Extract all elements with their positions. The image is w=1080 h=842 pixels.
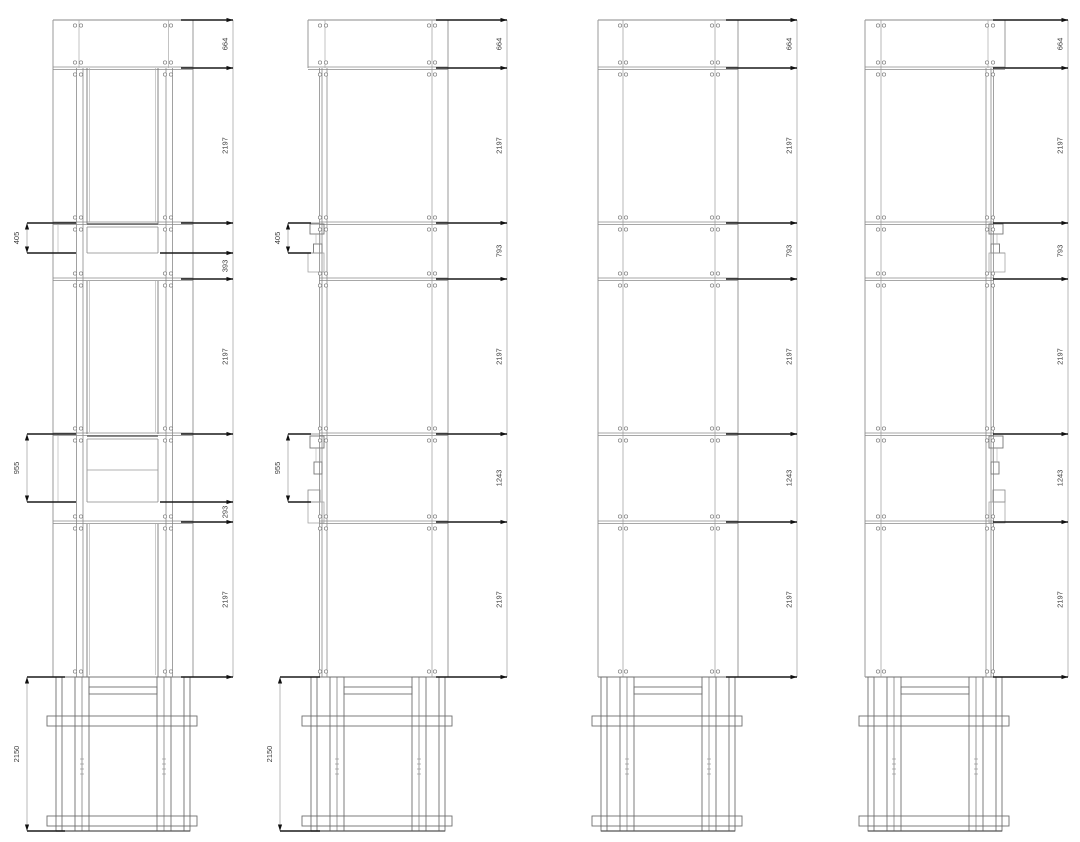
bolt-circle (79, 272, 82, 275)
bolt-circle (618, 670, 621, 673)
bolt-circle (710, 427, 713, 430)
bolt-circle (618, 527, 621, 530)
view-elevation-4: 6642197793219712432197 (859, 18, 1068, 831)
bolt-circle (991, 228, 994, 231)
dim-arrow (791, 432, 798, 436)
bolt-circle (716, 24, 719, 27)
bolt-circle (624, 272, 627, 275)
bolt-circle (324, 73, 327, 76)
bolt-circle (985, 527, 988, 530)
bolt-circle (79, 24, 82, 27)
bolt-circle (169, 73, 172, 76)
bolt-circle (624, 439, 627, 442)
bolt-circle (324, 527, 327, 530)
bolt-circle (716, 427, 719, 430)
bolt-circle (876, 24, 879, 27)
bolt-circle (882, 439, 885, 442)
dimension-chain: 6642197793219712432197 (993, 18, 1068, 679)
bolt-circle (716, 515, 719, 518)
bolt-circle (876, 61, 879, 64)
bolt-circle (618, 439, 621, 442)
dim-arrow (501, 18, 508, 22)
bolt-circle (433, 427, 436, 430)
bolt-circle (169, 24, 172, 27)
bolt-circle (427, 61, 430, 64)
bolt-circle (79, 427, 82, 430)
drawing-rect (439, 677, 445, 831)
bolt-circle (324, 272, 327, 275)
dim-arrow (227, 18, 234, 22)
bolt-circle (169, 61, 172, 64)
bolt-circle (433, 670, 436, 673)
bolt-circle (324, 515, 327, 518)
bolt-circle (433, 228, 436, 231)
dim-arrow (286, 496, 290, 503)
bolt-circle (73, 439, 76, 442)
dim-arrow (1062, 277, 1069, 281)
drawing-rect (996, 677, 1002, 831)
drawing-rect (989, 253, 1005, 272)
bolt-circle (710, 439, 713, 442)
drawing-rect (989, 502, 1005, 523)
dim-arrow (791, 18, 798, 22)
bolt-circle (433, 272, 436, 275)
bolt-circle (876, 515, 879, 518)
bolt-circle (318, 427, 321, 430)
dim-arrow (227, 66, 234, 70)
bolt-circle (169, 228, 172, 231)
bolt-circle (73, 272, 76, 275)
bolt-circle (427, 73, 430, 76)
bolt-circle (882, 670, 885, 673)
drawing-rect (601, 677, 607, 831)
dim-arrow (501, 221, 508, 225)
dim-arrow (286, 223, 290, 230)
drawing-rect (991, 462, 999, 474)
technical-drawing: 6642197393219729321974059552150664219779… (0, 0, 1080, 842)
dim-arrow (791, 520, 798, 524)
bolt-circle (882, 61, 885, 64)
drawing-rect (592, 716, 742, 726)
bolt-circle (991, 216, 994, 219)
bolt-circle (624, 228, 627, 231)
drawing-canvas: 6642197393219729321974059552150664219779… (0, 0, 1080, 842)
bolt-circle (985, 284, 988, 287)
dimension-chain: 6642197393219729321974059552150 (12, 18, 233, 831)
drawing-rect (901, 687, 969, 694)
bolt-circle (876, 73, 879, 76)
bolt-circle (716, 527, 719, 530)
bolt-circle (985, 670, 988, 673)
dimension-label: 293 (221, 506, 230, 519)
bolt-circle (318, 439, 321, 442)
bolt-circle (169, 272, 172, 275)
dim-arrow (791, 221, 798, 225)
bolt-circle (79, 670, 82, 673)
bolt-circle (324, 216, 327, 219)
dimension-label: 2197 (495, 348, 504, 365)
bolt-circle (618, 216, 621, 219)
bolt-circle (882, 527, 885, 530)
bolt-circle (624, 73, 627, 76)
dim-arrow (25, 496, 29, 503)
dimension-label: 2197 (1056, 591, 1065, 608)
dim-arrow (1062, 221, 1069, 225)
bolt-circle (73, 670, 76, 673)
bolt-circle (716, 284, 719, 287)
drawing-rect (344, 687, 412, 694)
bolt-circle (991, 61, 994, 64)
drawing-rect (302, 716, 452, 726)
bolt-circle (710, 284, 713, 287)
bottom-frame (592, 677, 742, 831)
bolt-circle (882, 284, 885, 287)
drawing-rect (634, 687, 702, 694)
bottom-frame (47, 677, 197, 831)
bolt-circle (624, 284, 627, 287)
bolt-circle (618, 272, 621, 275)
bolt-circle (169, 216, 172, 219)
drawing-rect (314, 462, 322, 474)
bolt-circle (73, 73, 76, 76)
dim-arrow (791, 675, 798, 679)
bolt-circle (624, 61, 627, 64)
bolt-circle (318, 61, 321, 64)
bolt-circle (427, 228, 430, 231)
dim-arrow (25, 677, 29, 684)
bolt-circle (427, 427, 430, 430)
dimension-label: 2197 (785, 591, 794, 608)
drawing-rect (311, 677, 317, 831)
dimension-label: 2197 (495, 137, 504, 154)
bolt-circle (163, 24, 166, 27)
drawing-rect (89, 687, 157, 694)
bolt-circle (991, 284, 994, 287)
bolt-circle (324, 284, 327, 287)
bolt-circle (433, 527, 436, 530)
bolt-circle (991, 527, 994, 530)
bolt-circle (318, 228, 321, 231)
dimension-label: 793 (785, 245, 794, 258)
bolt-circle (433, 515, 436, 518)
bolt-circle (882, 272, 885, 275)
bolt-circle (324, 228, 327, 231)
bolt-circle (882, 24, 885, 27)
bolt-circle (163, 284, 166, 287)
bolt-circle (618, 73, 621, 76)
drawing-rect (592, 816, 742, 826)
bolt-circle (710, 527, 713, 530)
view-elevation-2: 66421977932197124321974059552150 (265, 18, 507, 831)
bolt-circle (710, 73, 713, 76)
dimension-label: 2197 (221, 591, 230, 608)
bolt-circle (79, 73, 82, 76)
bolt-circle (985, 228, 988, 231)
drawing-rect (184, 677, 190, 831)
bolt-circle (163, 527, 166, 530)
dimension-label: 2150 (12, 746, 21, 763)
bolt-circle (73, 228, 76, 231)
dim-arrow (286, 247, 290, 254)
drawing-rect (56, 677, 62, 831)
bolt-circle (73, 284, 76, 287)
bolt-circle (876, 216, 879, 219)
bolt-circle (716, 670, 719, 673)
bolt-circle (618, 515, 621, 518)
bolt-circle (618, 284, 621, 287)
bolt-circle (427, 527, 430, 530)
bolt-circle (624, 515, 627, 518)
dimension-label: 1243 (495, 470, 504, 487)
dim-arrow (25, 434, 29, 441)
bolt-circle (716, 439, 719, 442)
bolt-circle (985, 427, 988, 430)
bolt-circle (169, 439, 172, 442)
bolt-circle (73, 24, 76, 27)
dim-arrow (1062, 432, 1069, 436)
dimension-label: 955 (12, 462, 21, 475)
bolt-circle (427, 670, 430, 673)
bolt-circle (73, 527, 76, 530)
dimension-label: 2197 (221, 137, 230, 154)
drawing-rect (729, 677, 735, 831)
bolt-circle (163, 515, 166, 518)
dimension-label: 2197 (785, 137, 794, 154)
bolt-circle (876, 527, 879, 530)
bolt-circle (985, 515, 988, 518)
bolt-circle (710, 670, 713, 673)
bolt-circle (318, 515, 321, 518)
dim-arrow (501, 277, 508, 281)
bolt-circle (73, 61, 76, 64)
bolt-circle (876, 670, 879, 673)
bolt-circle (318, 24, 321, 27)
bolt-circle (882, 427, 885, 430)
bolt-circle (324, 24, 327, 27)
dimension-label: 393 (221, 260, 230, 273)
bolt-circle (882, 73, 885, 76)
bolt-circle (79, 439, 82, 442)
bolt-circle (624, 216, 627, 219)
bolt-circle (169, 527, 172, 530)
bolt-circle (624, 527, 627, 530)
dim-arrow (227, 520, 234, 524)
bolt-circle (991, 427, 994, 430)
bolt-circle (433, 439, 436, 442)
bolt-circle (876, 272, 879, 275)
bolt-circle (73, 427, 76, 430)
dim-arrow (1062, 18, 1069, 22)
bolt-circle (318, 284, 321, 287)
bolt-circle (73, 216, 76, 219)
view-elevation-3: 6642197793219712432197 (592, 18, 797, 831)
dimension-label: 2150 (265, 746, 274, 763)
dim-arrow (791, 277, 798, 281)
dimension-label: 664 (221, 38, 230, 51)
bolt-circle (433, 24, 436, 27)
view-elevation-1: 6642197393219729321974059552150 (12, 18, 233, 831)
bolt-circle (618, 228, 621, 231)
dimension-label: 955 (273, 462, 282, 475)
dim-arrow (25, 247, 29, 254)
bolt-circle (985, 439, 988, 442)
bolt-circle (79, 61, 82, 64)
bottom-frame (859, 677, 1009, 831)
bolt-circle (427, 24, 430, 27)
dimension-label: 793 (1056, 245, 1065, 258)
dim-arrow (278, 677, 282, 684)
bolt-circle (163, 73, 166, 76)
bolt-circle (318, 216, 321, 219)
bolt-circle (618, 427, 621, 430)
bolt-circle (876, 439, 879, 442)
bolt-circle (985, 73, 988, 76)
bolt-circle (79, 284, 82, 287)
bolt-circle (624, 427, 627, 430)
bolt-circle (624, 670, 627, 673)
bolt-circle (324, 427, 327, 430)
bolt-circle (79, 527, 82, 530)
drawing-rect (47, 816, 197, 826)
dimension-label: 2197 (1056, 137, 1065, 154)
dimension-label: 2197 (221, 348, 230, 365)
bolt-circle (73, 515, 76, 518)
bolt-circle (882, 228, 885, 231)
bolt-circle (985, 272, 988, 275)
bolt-circle (324, 670, 327, 673)
bolt-circle (433, 216, 436, 219)
dim-arrow (1062, 675, 1069, 679)
dim-arrow (278, 825, 282, 832)
dimension-label: 1243 (785, 470, 794, 487)
dim-arrow (227, 432, 234, 436)
bolt-circle (882, 216, 885, 219)
bolt-circle (324, 61, 327, 64)
bolt-circle (163, 439, 166, 442)
dim-arrow (227, 500, 234, 504)
dim-arrow (501, 432, 508, 436)
bolt-circle (433, 284, 436, 287)
dimension-label: 793 (495, 245, 504, 258)
drawing-rect (859, 816, 1009, 826)
drawing-rect (47, 716, 197, 726)
dim-arrow (227, 675, 234, 679)
bolt-circle (985, 61, 988, 64)
bolt-circle (716, 73, 719, 76)
bolt-circle (710, 228, 713, 231)
bolt-circle (169, 427, 172, 430)
drawing-rect (859, 716, 1009, 726)
bolt-circle (716, 272, 719, 275)
bolt-circle (876, 228, 879, 231)
dimension-chain: 6642197793219712432197 (726, 18, 797, 679)
bolt-circle (163, 427, 166, 430)
dimension-label: 2197 (1056, 348, 1065, 365)
bolt-circle (427, 515, 430, 518)
bolt-circle (991, 670, 994, 673)
bolt-circle (324, 439, 327, 442)
bolt-circle (985, 216, 988, 219)
bolt-circle (163, 272, 166, 275)
drawing-rect (302, 816, 452, 826)
bolt-circle (985, 24, 988, 27)
dimension-label: 2197 (785, 348, 794, 365)
drawing-rect (868, 677, 874, 831)
bolt-circle (318, 73, 321, 76)
dim-arrow (227, 277, 234, 281)
bolt-circle (163, 228, 166, 231)
dim-arrow (1062, 520, 1069, 524)
bolt-circle (318, 670, 321, 673)
bolt-circle (876, 284, 879, 287)
bolt-circle (710, 24, 713, 27)
dimension-label: 664 (785, 38, 794, 51)
bolt-circle (163, 670, 166, 673)
bolt-circle (427, 439, 430, 442)
bolt-circle (991, 24, 994, 27)
bolt-circle (624, 24, 627, 27)
dim-arrow (227, 251, 234, 255)
dim-arrow (791, 66, 798, 70)
bolt-circle (427, 284, 430, 287)
bolt-circle (169, 670, 172, 673)
bolt-circle (618, 61, 621, 64)
bolt-circle (710, 61, 713, 64)
bolt-circle (876, 427, 879, 430)
drawing-rect (308, 490, 320, 502)
bolt-circle (169, 284, 172, 287)
bolt-circle (79, 228, 82, 231)
dim-arrow (1062, 66, 1069, 70)
dim-arrow (286, 434, 290, 441)
drawing-rect (314, 244, 323, 253)
dim-arrow (501, 675, 508, 679)
bolt-circle (427, 216, 430, 219)
bolt-circle (991, 515, 994, 518)
bolt-circle (433, 61, 436, 64)
bolt-circle (318, 527, 321, 530)
dimension-label: 664 (495, 38, 504, 51)
dimension-label: 1243 (1056, 470, 1065, 487)
dimension-chain: 66421977932197124321974059552150 (265, 18, 507, 831)
bolt-circle (169, 515, 172, 518)
bolt-circle (991, 73, 994, 76)
bottom-frame (302, 677, 452, 831)
drawing-rect (991, 244, 1000, 253)
bolt-circle (716, 228, 719, 231)
bolt-circle (79, 216, 82, 219)
bolt-circle (710, 272, 713, 275)
bolt-circle (710, 216, 713, 219)
bolt-circle (163, 61, 166, 64)
bolt-circle (991, 439, 994, 442)
bolt-circle (79, 515, 82, 518)
bolt-circle (427, 272, 430, 275)
bolt-circle (163, 216, 166, 219)
dim-arrow (227, 221, 234, 225)
dim-arrow (501, 520, 508, 524)
bolt-circle (716, 61, 719, 64)
bolt-circle (716, 216, 719, 219)
drawing-rect (993, 490, 1005, 502)
dimension-label: 405 (273, 232, 282, 245)
bolt-circle (618, 24, 621, 27)
dimension-label: 405 (12, 232, 21, 245)
dim-arrow (25, 223, 29, 230)
dim-arrow (501, 66, 508, 70)
bolt-circle (433, 73, 436, 76)
dim-arrow (25, 825, 29, 832)
